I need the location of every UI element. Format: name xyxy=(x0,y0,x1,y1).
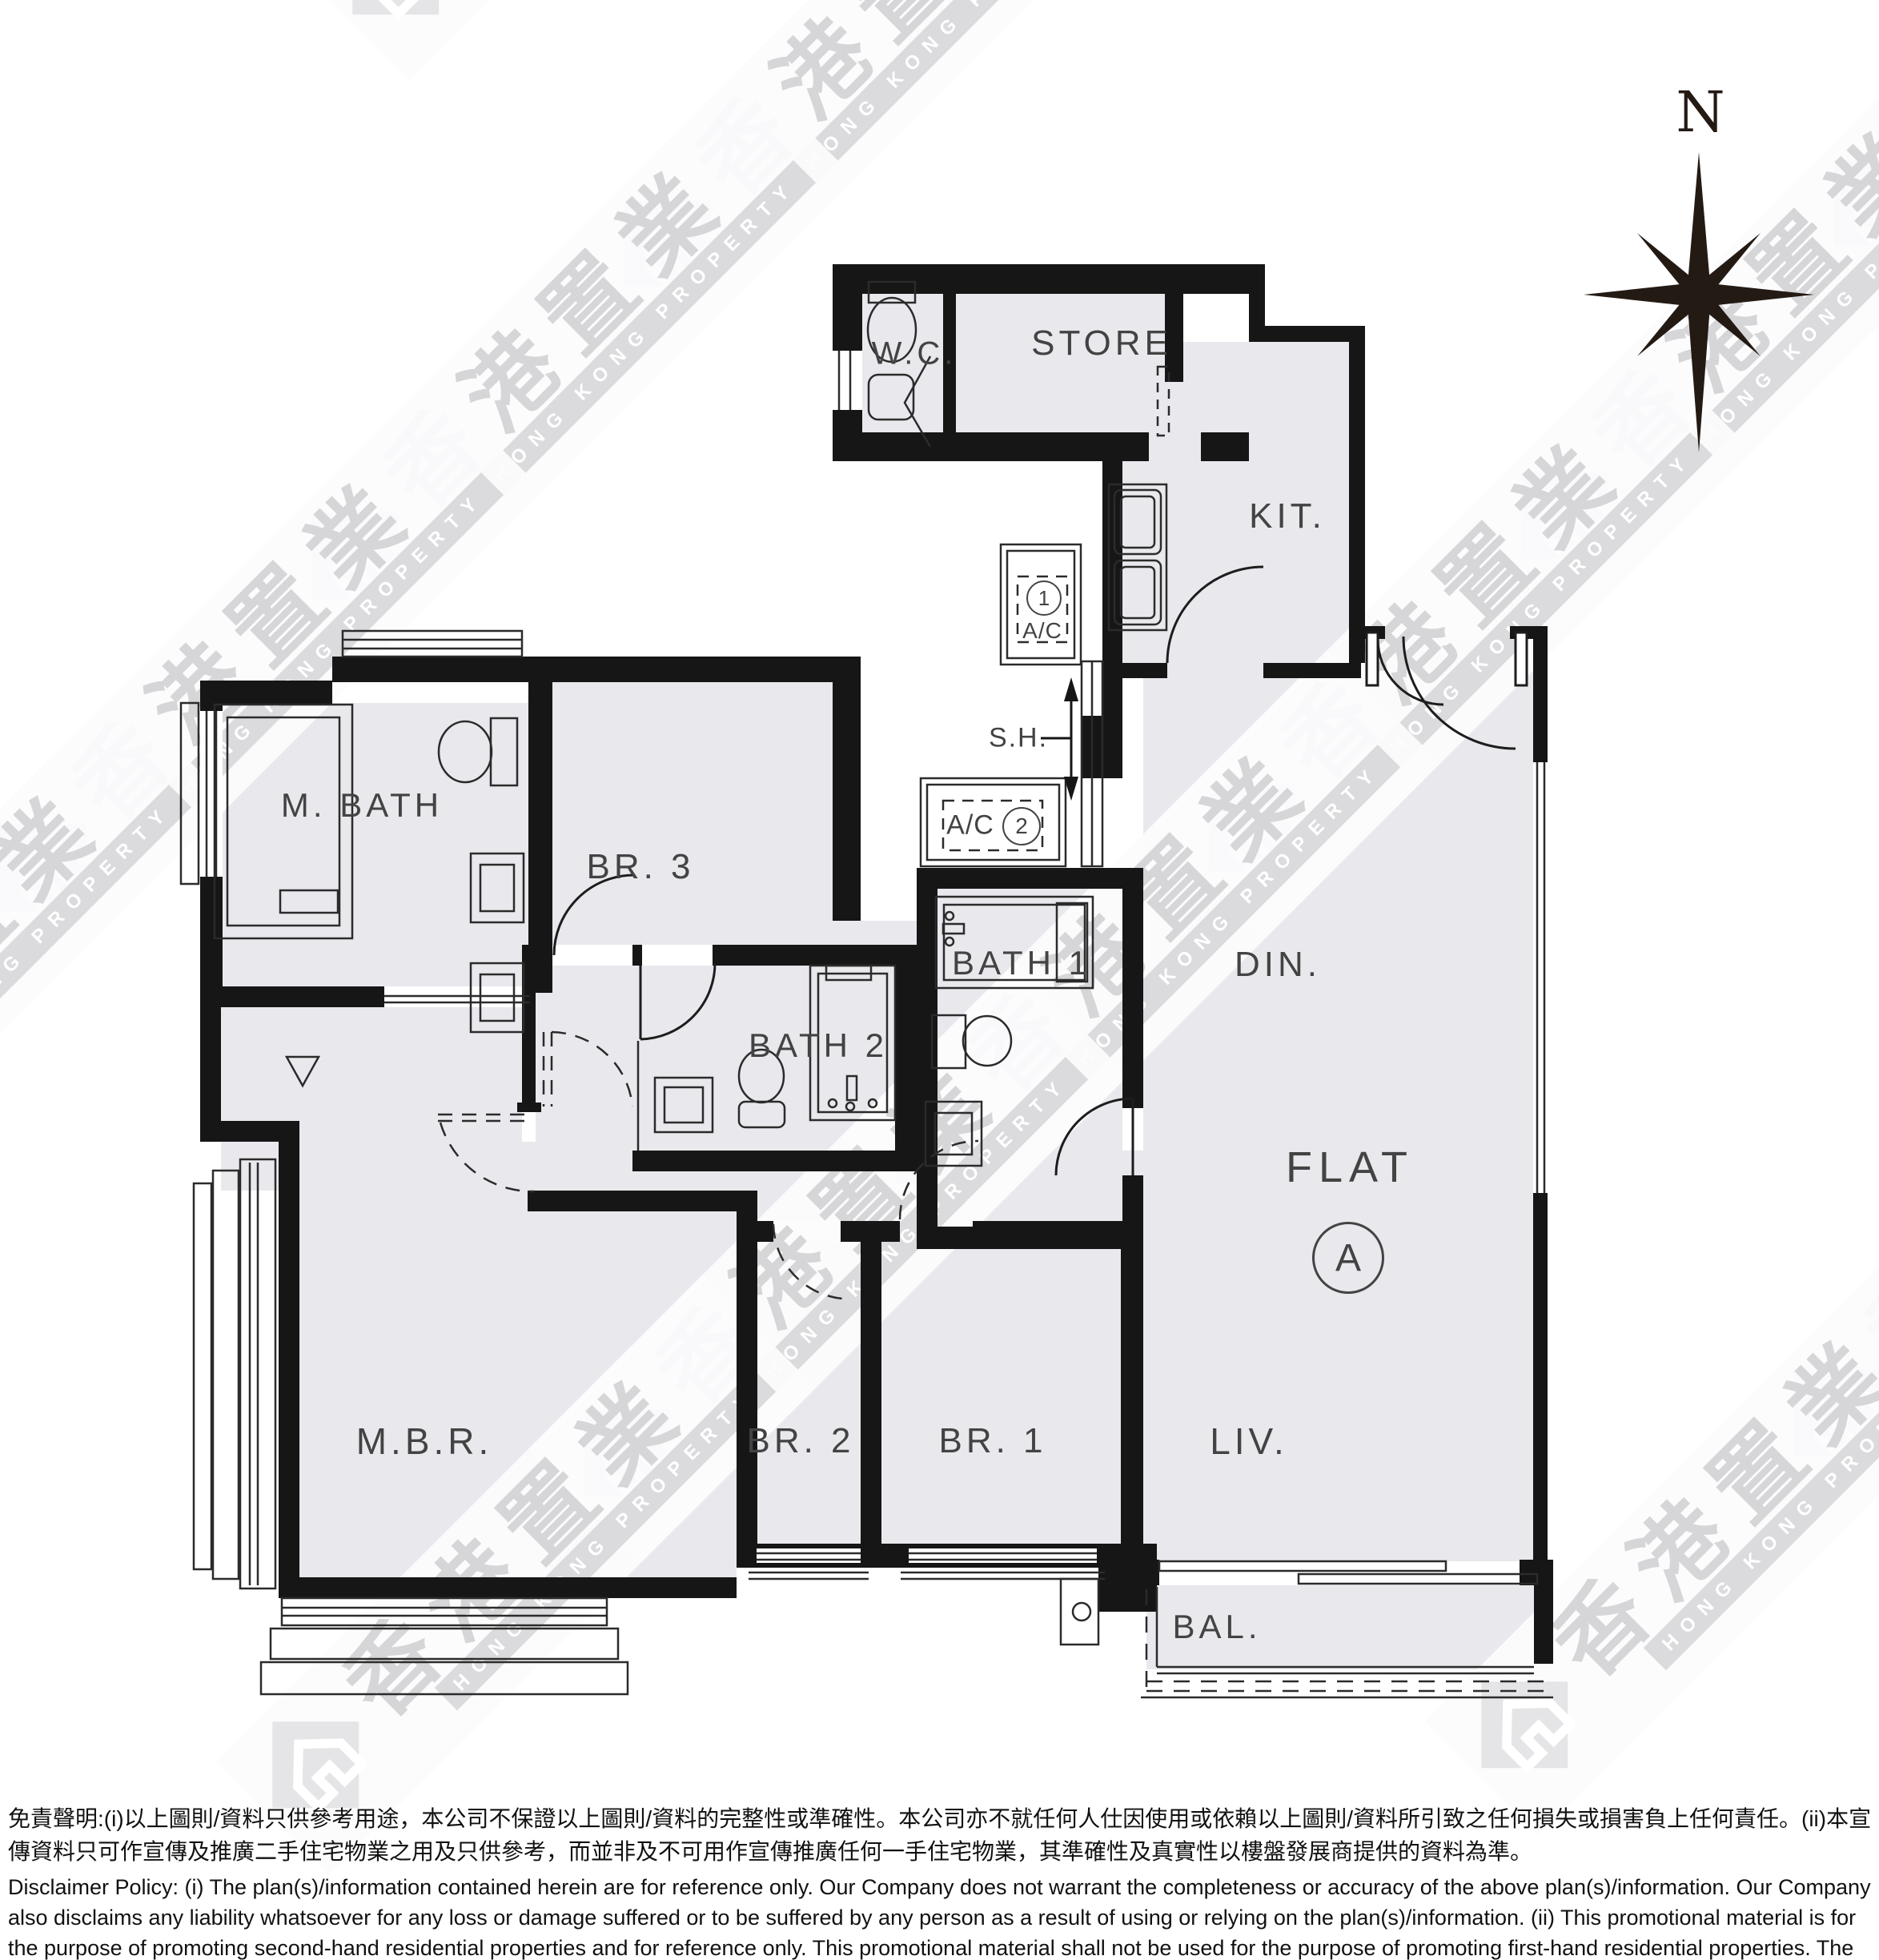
room-label-bath2: BATH 2 xyxy=(749,1026,888,1065)
room-label-store: STORE xyxy=(1031,323,1172,363)
ac2-number-badge: 2 xyxy=(1002,807,1041,845)
flat-label: FLAT xyxy=(1286,1143,1414,1192)
disclaimer-en: Disclaimer Policy: (i) The plan(s)/infor… xyxy=(8,1873,1873,1960)
room-label-br2: BR. 2 xyxy=(746,1421,854,1461)
room-label-wc: W.C. xyxy=(872,336,958,372)
ac2-label: A/C xyxy=(946,810,994,841)
compass-north-label: N xyxy=(1676,79,1724,145)
room-label-din: DIN. xyxy=(1235,945,1321,985)
room-label-liv: LIV. xyxy=(1210,1420,1288,1463)
label-layer: N W.C. STORE KIT. DIN. S.H. BATH 1 BATH … xyxy=(0,0,1879,1960)
floor-plan-page: 香港置業HONG KONG PROPERTY 香港置業HONG KONG PRO… xyxy=(0,0,1879,1960)
room-label-br1: BR. 1 xyxy=(938,1421,1046,1461)
room-label-br3: BR. 3 xyxy=(586,847,694,887)
disclaimer-zh: 免責聲明:(i)以上圖則/資料只供參考用途，本公司不保證以上圖則/資料的完整性或… xyxy=(8,1803,1873,1868)
room-label-bal: BAL. xyxy=(1172,1608,1261,1646)
room-label-mbath: M. BATH xyxy=(281,786,443,825)
ac1-number-badge: 1 xyxy=(1026,580,1062,616)
flat-unit-badge: A xyxy=(1312,1222,1384,1294)
disclaimer-block: 免責聲明:(i)以上圖則/資料只供參考用途，本公司不保證以上圖則/資料的完整性或… xyxy=(8,1803,1873,1960)
room-label-mbr: M.B.R. xyxy=(356,1420,493,1463)
room-label-kit: KIT. xyxy=(1249,496,1326,536)
ac1-label: A/C xyxy=(1022,618,1062,644)
ac1-number: 1 xyxy=(1038,586,1050,611)
room-label-bath1: BATH 1 xyxy=(952,944,1091,982)
flat-unit-letter: A xyxy=(1335,1236,1361,1280)
annotation-sh: S.H. xyxy=(989,723,1048,754)
ac2-number: 2 xyxy=(1015,813,1028,839)
